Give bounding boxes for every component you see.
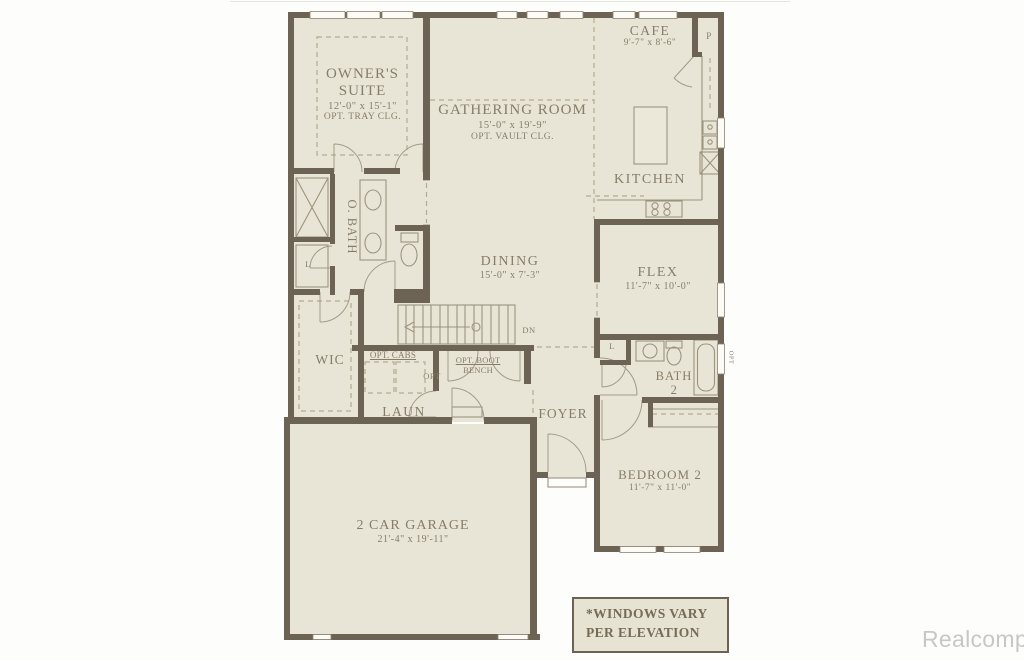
windows-note-line-2: PER ELEVATION <box>586 624 727 643</box>
garage-name: 2 CAR GARAGE <box>343 518 483 534</box>
pantry-label: P <box>701 31 717 41</box>
bedroom2-size: 11'-7" x 11'-0" <box>605 483 715 494</box>
realcomp-watermark: Realcomp <box>922 626 1024 653</box>
owners-bath-label: O. BATH <box>345 187 359 267</box>
windows-note-line-1: *WINDOWS VARY <box>586 605 727 624</box>
cafe-label: CAFE 9'-7" x 8'-6" <box>605 23 695 49</box>
windows-note-box: *WINDOWS VARY PER ELEVATION <box>572 597 729 653</box>
garage-size: 21'-4" x 19'-11" <box>343 534 483 545</box>
boot-bench-label: OPT. BOOT BENCH <box>447 356 509 375</box>
owners-suite-name-2: SUITE <box>300 83 425 100</box>
dining-name: DINING <box>450 254 570 270</box>
bedroom2-name: BEDROOM 2 <box>605 468 715 483</box>
bath2-name-1: BATH <box>649 369 699 383</box>
bedroom2-label: BEDROOM 2 11'-7" x 11'-0" <box>605 468 715 493</box>
cafe-name: CAFE <box>605 23 695 38</box>
dining-label: DINING 15'-0" x 7'-3" <box>450 254 570 281</box>
linen-obath-label: L <box>300 260 316 270</box>
linen-bath2-label: L <box>604 342 620 352</box>
laundry-label: LAUN <box>374 404 434 419</box>
bath2-label: BATH 2 <box>649 369 699 397</box>
front-porch-step <box>548 478 586 487</box>
cafe-size: 9'-7" x 8'-6" <box>605 38 695 49</box>
boot-bench-line-2: BENCH <box>447 366 509 376</box>
wic-label: WIC <box>305 352 355 367</box>
flex-name: FLEX <box>608 265 708 281</box>
gathering-room-size: 15'-0" x 19'-9" <box>430 120 595 132</box>
owners-suite-name-1: OWNER'S <box>300 66 425 83</box>
flex-size: 11'-7" x 10'-0" <box>608 281 708 292</box>
flex-label: FLEX 11'-7" x 10'-0" <box>608 265 708 292</box>
gathering-room-note: OPT. VAULT CLG. <box>430 132 595 143</box>
dining-size: 15'-0" x 7'-3" <box>450 270 570 281</box>
floor-plan-drawing <box>0 0 1024 660</box>
gathering-room-label: GATHERING ROOM 15'-0" x 19'-9" OPT. VAUL… <box>430 102 595 142</box>
kitchen-label: KITCHEN <box>600 172 700 188</box>
owners-suite-label: OWNER'S SUITE 12'-0" x 15'-1" OPT. TRAY … <box>300 66 425 123</box>
opt-cabs-label: OPT. CABS <box>362 350 424 360</box>
owners-suite-size: 12'-0" x 15'-1" <box>300 101 425 113</box>
bath2-name-2: 2 <box>649 383 699 397</box>
garage-label: 2 CAR GARAGE 21'-4" x 19'-11" <box>343 518 483 545</box>
foyer-label: FOYER <box>532 406 594 421</box>
stairs-down-label: DN <box>517 326 541 336</box>
opt-label: OPT <box>419 372 445 382</box>
owners-suite-note: OPT. TRAY CLG. <box>300 112 425 123</box>
kitchen-island <box>634 107 667 164</box>
floor-plan-page: OWNER'S SUITE 12'-0" x 15'-1" OPT. TRAY … <box>0 0 1024 660</box>
opt-window-label: OPT <box>727 350 734 366</box>
gathering-room-name: GATHERING ROOM <box>430 102 595 119</box>
